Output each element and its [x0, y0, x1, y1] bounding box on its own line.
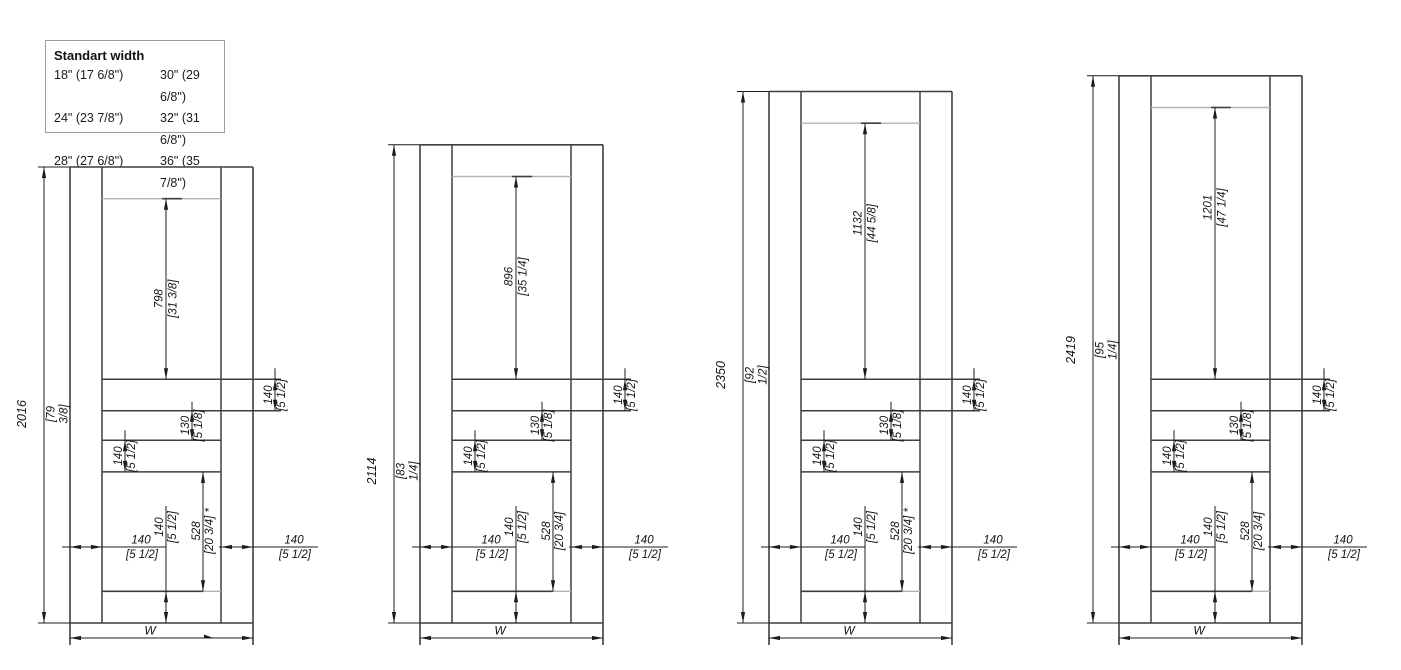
- door-elevation-diagrams: 2016[793/8]798[31 3/8]140[5 1/2]130[5 1/…: [0, 0, 1401, 670]
- rail2-mm-label: 140: [1162, 446, 1174, 466]
- overall-width-label: W: [144, 624, 157, 638]
- gap-mm-label: 130: [180, 415, 192, 435]
- total-height-mm-label: 2114: [365, 458, 379, 486]
- lower-opening-mm-label: 528: [890, 521, 902, 541]
- rail1-inch-label: [5 1/2]: [975, 378, 987, 412]
- left-stile-inch-label: [5 1/2]: [1174, 549, 1208, 561]
- total-height-inch-label: 1/4]: [409, 461, 421, 481]
- top-opening-inch-label: [44 5/8]: [867, 203, 879, 243]
- rail2-inch-label: [5 1/2]: [825, 439, 837, 473]
- rail1-inch-label: [5 1/2]: [1325, 378, 1337, 412]
- bottom-rail-mm-label: 140: [154, 517, 166, 537]
- right-stile-mm-label: 140: [983, 535, 1003, 547]
- bottom-rail-inch-label: [5 1/2]: [167, 510, 179, 544]
- rail2-inch-label: [5 1/2]: [126, 439, 138, 473]
- total-height-inch-label: [95: [1095, 341, 1107, 359]
- rail2-mm-label: 140: [463, 446, 475, 466]
- door-diagram-2: 2114[831/4]896[35 1/4]140[5 1/2]130[5 1/…: [365, 145, 668, 645]
- gap-mm-label: 130: [879, 415, 891, 435]
- lower-opening-mm-label: 528: [1240, 521, 1252, 541]
- bottom-rail-mm-label: 140: [1203, 517, 1215, 537]
- bottom-rail-mm-label: 140: [853, 517, 865, 537]
- gap-inch-label: [5 1/8]: [892, 409, 904, 443]
- door-diagram-1: 2016[793/8]798[31 3/8]140[5 1/2]130[5 1/…: [15, 167, 318, 645]
- lower-opening-mm-label: 528: [541, 521, 553, 541]
- top-opening-mm-label: 1132: [853, 210, 865, 235]
- left-stile-mm-label: 140: [131, 535, 151, 547]
- rail1-mm-label: 140: [1312, 385, 1324, 405]
- rail2-inch-label: [5 1/2]: [1175, 439, 1187, 473]
- overall-width-label: W: [843, 624, 856, 638]
- top-opening-mm-label: 896: [504, 266, 516, 286]
- right-stile-inch-label: [5 1/2]: [977, 549, 1011, 561]
- gap-mm-label: 130: [530, 415, 542, 435]
- bottom-rail-inch-label: [5 1/2]: [517, 510, 529, 544]
- lower-opening-inch-label: [20 3/4]: [1253, 511, 1265, 551]
- rail2-mm-label: 140: [812, 446, 824, 466]
- rail2-mm-label: 140: [113, 446, 125, 466]
- top-opening-inch-label: [47 1/4]: [1217, 188, 1229, 228]
- door-diagram-3: 2350[921/2]1132[44 5/8]140[5 1/2]130[5 1…: [714, 92, 1017, 646]
- right-stile-mm-label: 140: [634, 535, 654, 547]
- gap-inch-label: [5 1/8]: [543, 409, 555, 443]
- total-height-inch-label: [83: [396, 462, 408, 480]
- lower-opening-inch-label: [20 3/4] *: [204, 507, 216, 555]
- rail1-inch-label: [5 1/2]: [276, 378, 288, 412]
- left-stile-inch-label: [5 1/2]: [125, 549, 159, 561]
- gap-inch-label: [5 1/8]: [193, 409, 205, 443]
- top-opening-mm-label: 1201: [1203, 195, 1215, 221]
- total-height-mm-label: 2419: [1064, 336, 1078, 365]
- lower-opening-inch-label: [20 3/4] *: [903, 507, 915, 555]
- left-stile-inch-label: [5 1/2]: [475, 549, 509, 561]
- rail1-mm-label: 140: [613, 385, 625, 405]
- right-stile-mm-label: 140: [284, 535, 304, 547]
- right-stile-inch-label: [5 1/2]: [628, 549, 662, 561]
- left-stile-mm-label: 140: [830, 535, 850, 547]
- gap-mm-label: 130: [1229, 415, 1241, 435]
- total-height-inch-label: [92: [745, 366, 757, 384]
- gap-inch-label: [5 1/8]: [1242, 409, 1254, 443]
- total-height-inch-label: [79: [46, 405, 58, 423]
- top-opening-mm-label: 798: [154, 289, 166, 309]
- left-stile-inch-label: [5 1/2]: [824, 549, 858, 561]
- total-height-inch-label: 1/4]: [1108, 340, 1120, 360]
- rail1-mm-label: 140: [962, 385, 974, 405]
- bottom-rail-mm-label: 140: [504, 517, 516, 537]
- right-stile-mm-label: 140: [1333, 535, 1353, 547]
- right-stile-inch-label: [5 1/2]: [278, 549, 312, 561]
- right-stile-inch-label: [5 1/2]: [1327, 549, 1361, 561]
- width-line-tick: [204, 635, 212, 638]
- lower-opening-inch-label: [20 3/4]: [554, 511, 566, 551]
- rail1-mm-label: 140: [263, 385, 275, 405]
- overall-width-label: W: [494, 624, 507, 638]
- bottom-rail-inch-label: [5 1/2]: [1216, 510, 1228, 544]
- total-height-mm-label: 2350: [714, 361, 728, 390]
- rail1-inch-label: [5 1/2]: [626, 378, 638, 412]
- total-height-mm-label: 2016: [15, 400, 29, 429]
- bottom-rail-inch-label: [5 1/2]: [866, 510, 878, 544]
- overall-width-label: W: [1193, 624, 1206, 638]
- left-stile-mm-label: 140: [1180, 535, 1200, 547]
- lower-opening-mm-label: 528: [191, 521, 203, 541]
- top-opening-inch-label: [31 3/8]: [168, 279, 180, 319]
- left-stile-mm-label: 140: [481, 535, 501, 547]
- total-height-inch-label: 3/8]: [59, 404, 71, 424]
- total-height-inch-label: 1/2]: [758, 365, 770, 385]
- rail2-inch-label: [5 1/2]: [476, 439, 488, 473]
- door-diagram-4: 2419[951/4]1201[47 1/4]140[5 1/2]130[5 1…: [1064, 76, 1367, 645]
- top-opening-inch-label: [35 1/4]: [518, 257, 530, 297]
